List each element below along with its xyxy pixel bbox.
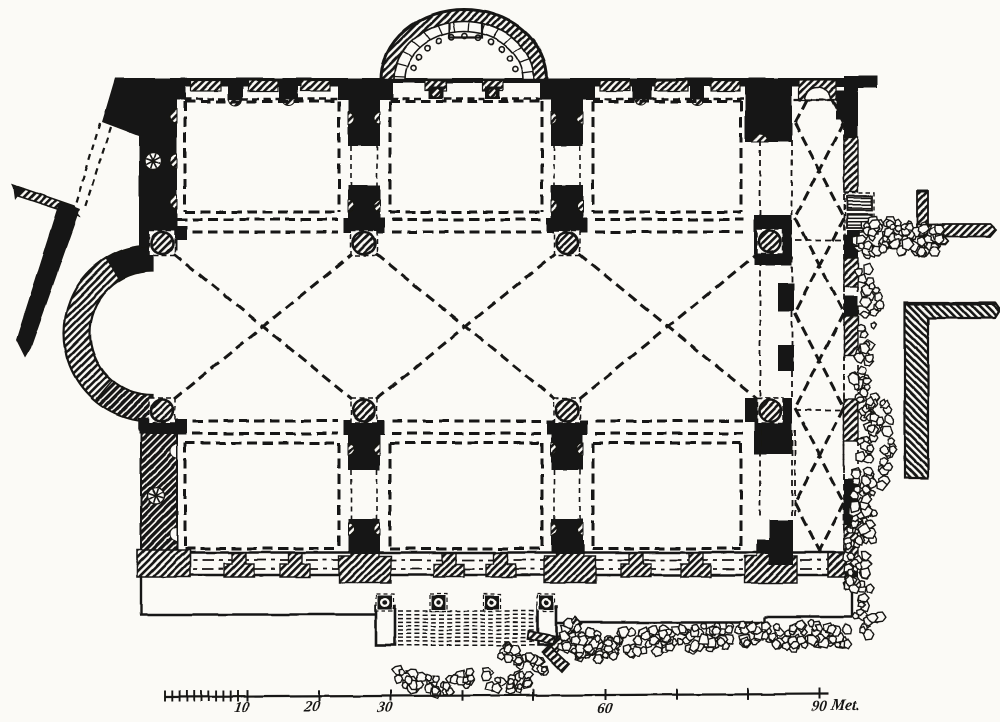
svg-text:10: 10 xyxy=(233,700,251,716)
svg-text:60: 60 xyxy=(596,701,614,717)
svg-text:Met.: Met. xyxy=(829,697,862,714)
svg-text:90: 90 xyxy=(811,699,829,715)
svg-text:20: 20 xyxy=(303,699,322,715)
svg-text:30: 30 xyxy=(375,700,394,716)
